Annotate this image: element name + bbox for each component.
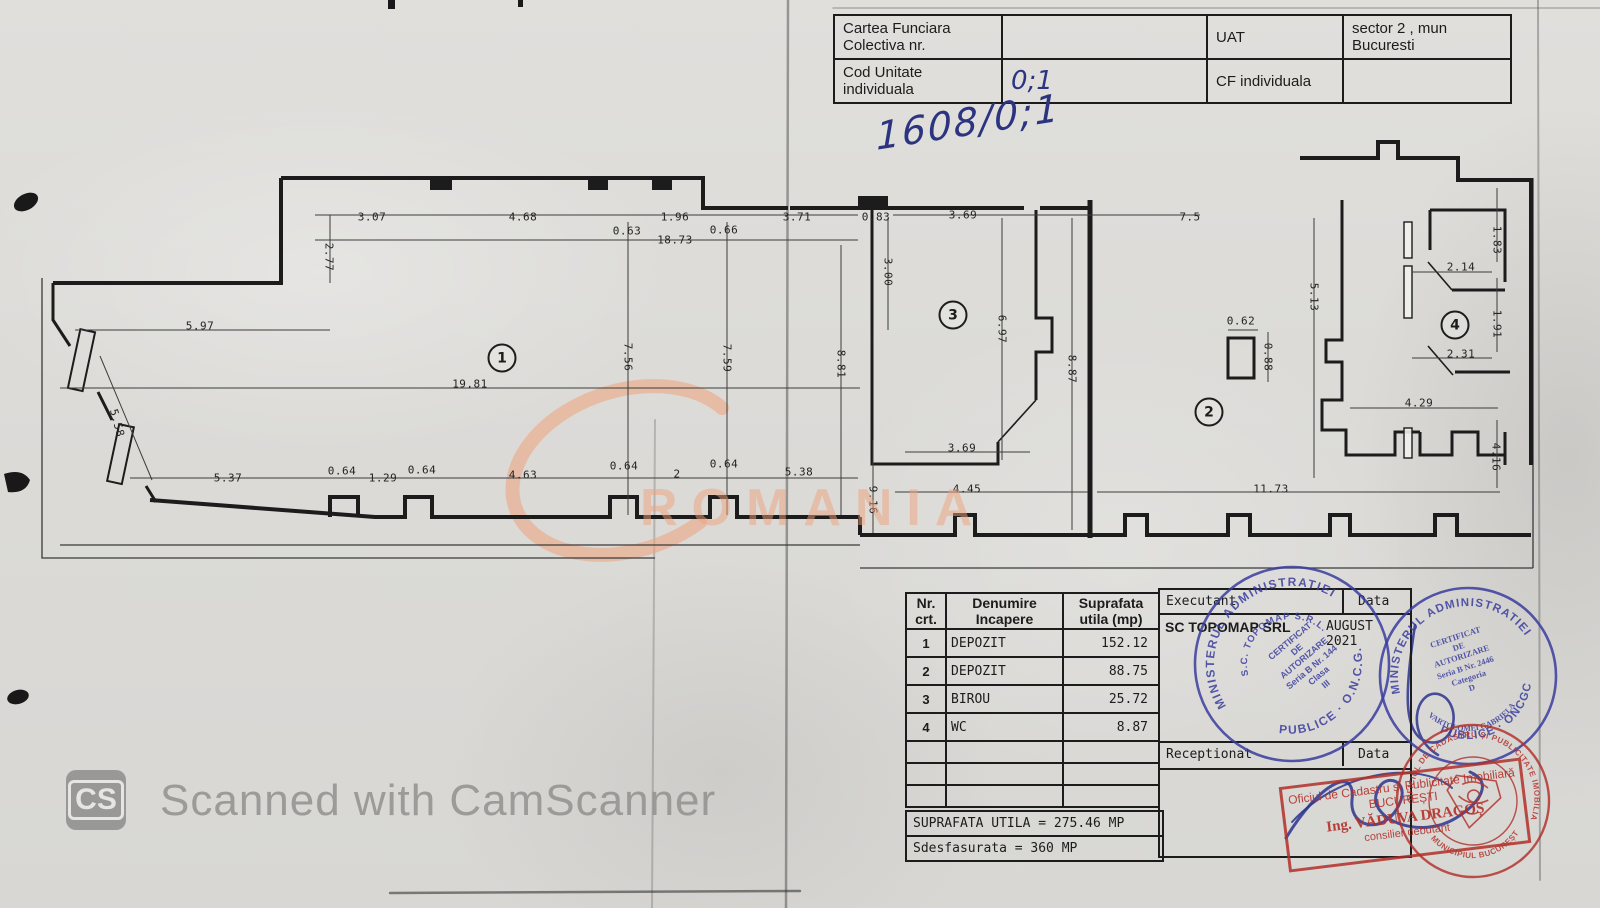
dimension-label: 2.14 — [1447, 261, 1476, 274]
dimension-label: 0.62 — [1227, 315, 1256, 328]
dimension-label: 4.68 — [509, 211, 538, 224]
dimension-label: 19.81 — [452, 378, 488, 391]
row-nr: 4 — [906, 713, 946, 741]
dimension-label: 0.64 — [408, 464, 437, 477]
dimension-label: 5.37 — [214, 472, 243, 485]
dimension-label: 7.59 — [721, 344, 734, 373]
scanned-cadastral-document: 3.074.681.963.710.833.697.50.630.6618.73… — [0, 0, 1600, 908]
cartea-funciara-value — [1002, 15, 1207, 59]
table-empty-row — [906, 763, 1159, 785]
dimension-label: 3.71 — [783, 211, 812, 224]
col-suprafata: Suprafata utila (mp) — [1063, 593, 1159, 629]
table-row: Cod Unitate individuala 0;1 CF individua… — [834, 59, 1511, 103]
header-table: Cartea Funciara Colectiva nr. UAT sector… — [833, 14, 1512, 104]
camscanner-badge-letters: CS — [68, 780, 124, 820]
dimension-label: 1.83 — [1491, 226, 1504, 255]
dimension-label: 1.29 — [369, 472, 398, 485]
dimension-label: 8.87 — [1066, 355, 1079, 384]
row-name: WC — [946, 713, 1063, 741]
row-area: 8.87 — [1063, 713, 1159, 741]
cod-unitate-label: Cod Unitate individuala — [834, 59, 1002, 103]
dimension-label: 0.63 — [613, 225, 642, 238]
room-number-label: 4 — [1441, 311, 1470, 340]
dimension-label: 3.69 — [948, 442, 977, 455]
table-header-row: Nr. crt. Denumire Incapere Suprafata uti… — [906, 593, 1159, 629]
row-nr: 1 — [906, 629, 946, 657]
table-row: 3 BIROU 25.72 — [906, 685, 1159, 713]
room-schedule-table: Nr. crt. Denumire Incapere Suprafata uti… — [905, 592, 1160, 808]
dimension-label: 0.66 — [710, 224, 739, 237]
row-name: DEPOZIT — [946, 657, 1063, 685]
dimension-label: 5.97 — [186, 320, 215, 333]
dimension-label: 0.83 — [862, 211, 891, 224]
stamp-line: D — [1467, 682, 1476, 693]
room-number-label: 1 — [488, 344, 517, 373]
dimension-label: 4.16 — [1490, 443, 1503, 472]
dimension-label: 3.69 — [949, 209, 978, 222]
cf-individuala-value — [1343, 59, 1511, 103]
dimension-label: 3.07 — [358, 211, 387, 224]
dimension-label: 4.29 — [1405, 397, 1434, 410]
row-area: 152.12 — [1063, 629, 1159, 657]
page-edge-marks — [4, 0, 523, 707]
table-row: 1 DEPOZIT 152.12 — [906, 629, 1159, 657]
uat-label: UAT — [1207, 15, 1343, 59]
cartea-funciara-label: Cartea Funciara Colectiva nr. — [834, 15, 1002, 59]
dimension-label: 8.81 — [835, 350, 848, 379]
dimension-label: 0.88 — [1262, 343, 1275, 372]
dimension-label: 7.56 — [622, 343, 635, 372]
dimension-label: 1.96 — [661, 211, 690, 224]
camscanner-watermark-text: Scanned with CamScanner — [160, 776, 716, 826]
row-name: DEPOZIT — [946, 629, 1063, 657]
dimension-label: 2.77 — [323, 243, 336, 272]
dimension-label: 3.00 — [882, 258, 895, 287]
col-nr-crt: Nr. crt. — [906, 593, 946, 629]
row-name: BIROU — [946, 685, 1063, 713]
uat-value: sector 2 , mun Bucuresti — [1343, 15, 1511, 59]
table-empty-row — [906, 741, 1159, 763]
dimension-label: 0.64 — [328, 465, 357, 478]
suprafata-utila-total: SUPRAFATA UTILA = 275.46 MP — [907, 812, 1162, 837]
row-nr: 2 — [906, 657, 946, 685]
suprafata-desfasurata: Sdesfasurata = 360 MP — [907, 837, 1162, 860]
room-number-label: 3 — [939, 301, 968, 330]
dimension-label: 7.5 — [1179, 211, 1200, 224]
dimension-label: 18.73 — [657, 234, 693, 247]
dimension-label: 5.13 — [1308, 283, 1321, 312]
cf-individuala-label: CF individuala — [1207, 59, 1343, 103]
camscanner-logo-icon: CS — [66, 770, 126, 830]
dimension-label: 2.31 — [1447, 348, 1476, 361]
dimension-label: 0.64 — [610, 460, 639, 473]
dimension-label: 0.64 — [710, 458, 739, 471]
row-area: 88.75 — [1063, 657, 1159, 685]
dimension-label: 6.97 — [996, 315, 1009, 344]
totals-box: SUPRAFATA UTILA = 275.46 MP Sdesfasurata… — [905, 810, 1164, 862]
row-nr: 3 — [906, 685, 946, 713]
romania-watermark-text: ROMANIA — [640, 478, 986, 538]
dimension-label: 5.38 — [785, 466, 814, 479]
col-denumire: Denumire Incapere — [946, 593, 1063, 629]
dimension-label: 4.63 — [509, 469, 538, 482]
table-row: 4 WC 8.87 — [906, 713, 1159, 741]
dimension-label: 1.91 — [1491, 310, 1504, 339]
table-empty-row — [906, 785, 1159, 807]
table-row: 2 DEPOZIT 88.75 — [906, 657, 1159, 685]
table-row: Cartea Funciara Colectiva nr. UAT sector… — [834, 15, 1511, 59]
row-area: 25.72 — [1063, 685, 1159, 713]
dimension-label: 11.73 — [1253, 483, 1289, 496]
room-number-label: 2 — [1195, 398, 1224, 427]
